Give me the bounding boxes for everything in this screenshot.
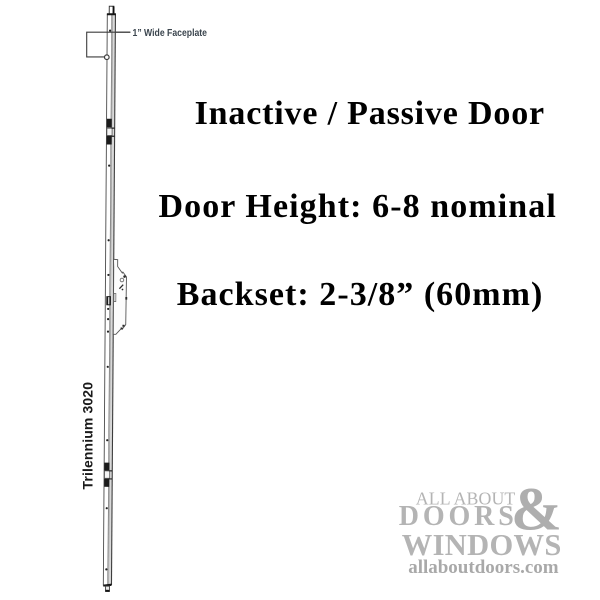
svg-text:Door Height: 6-8 nominal: Door Height: 6-8 nominal	[159, 188, 556, 225]
svg-text:Backset: 2-3/8” (60mm): Backset: 2-3/8” (60mm)	[177, 276, 543, 313]
svg-text:Inactive / Passive Door: Inactive / Passive Door	[195, 95, 544, 132]
svg-text:Trilennium 3020: Trilennium 3020	[80, 382, 96, 490]
svg-text:1” Wide Faceplate: 1” Wide Faceplate	[133, 27, 208, 39]
svg-text:allaboutdoors.com: allaboutdoors.com	[408, 557, 559, 578]
